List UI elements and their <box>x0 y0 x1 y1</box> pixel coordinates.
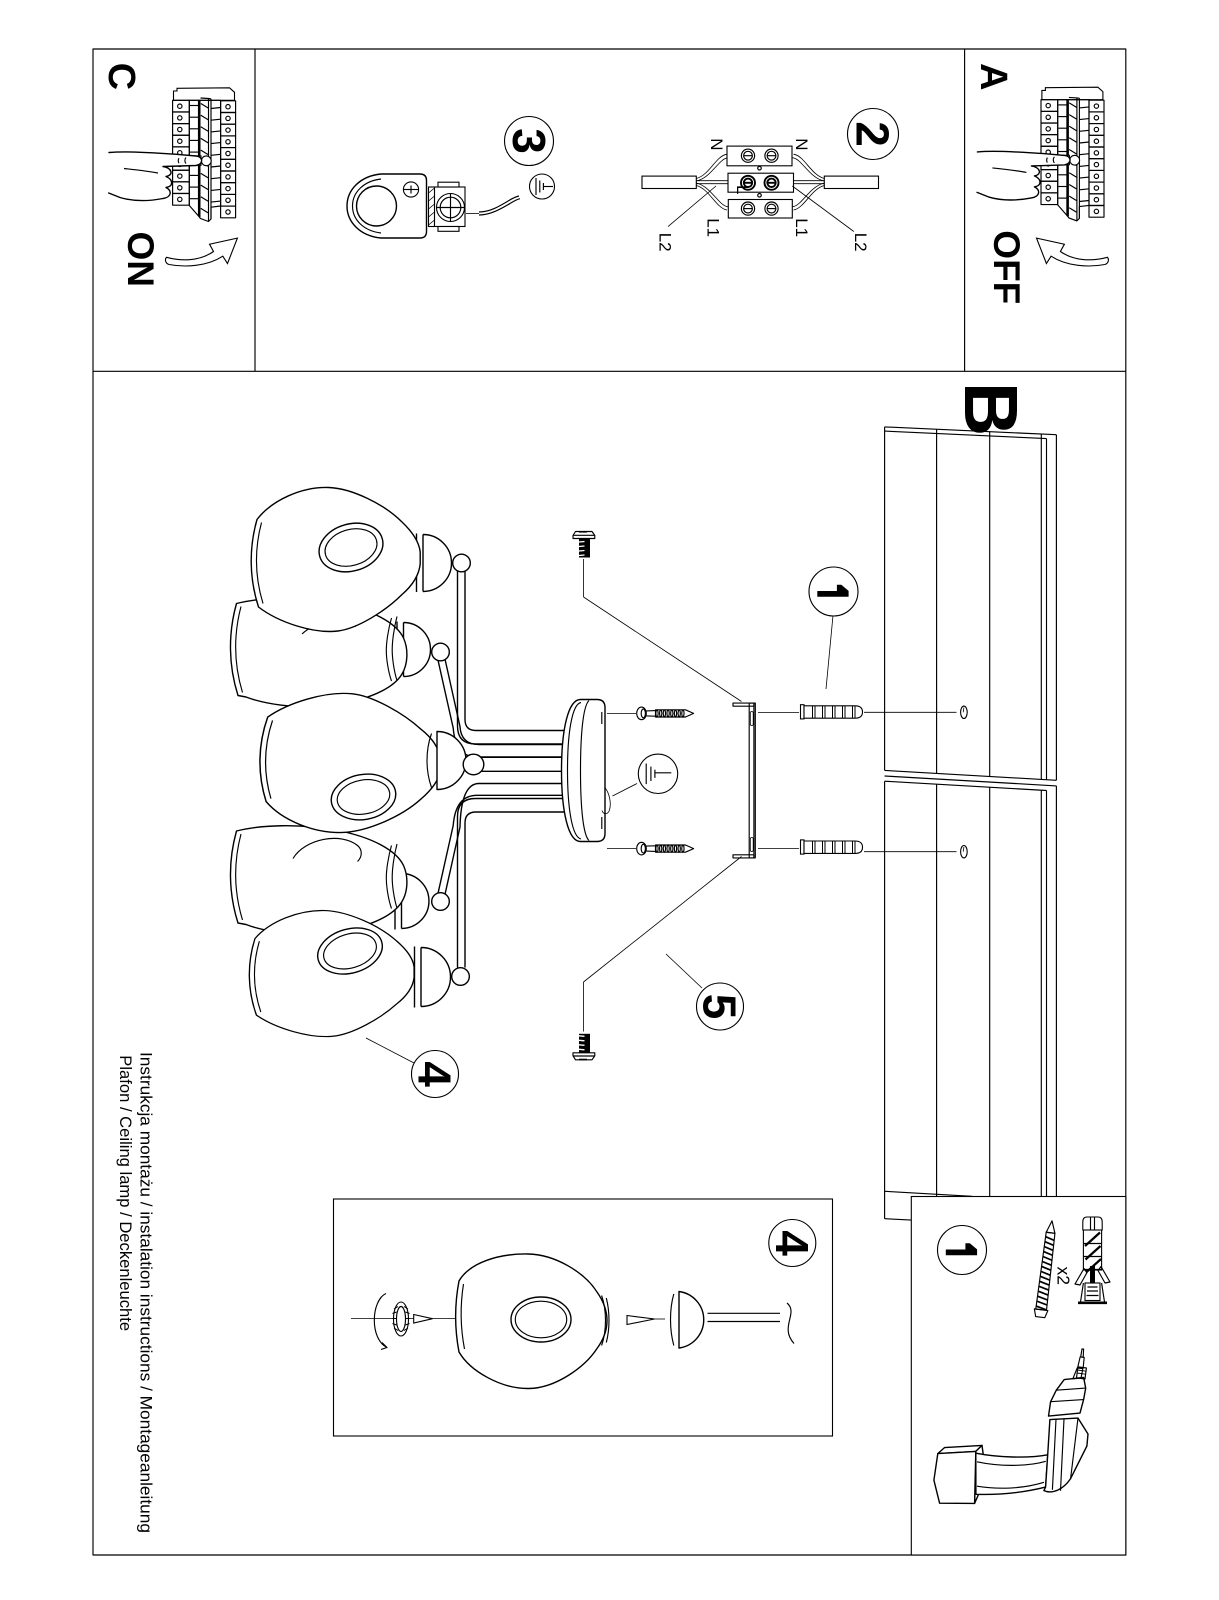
svg-text:N: N <box>792 138 811 150</box>
svg-text:A: A <box>972 63 1014 90</box>
svg-text:Plafon / Ceiling lamp / Decken: Plafon / Ceiling lamp / Deckenleuchte <box>116 1055 135 1331</box>
svg-text:ON: ON <box>120 232 161 288</box>
svg-text:5: 5 <box>694 994 746 1020</box>
svg-text:L1: L1 <box>792 218 811 237</box>
svg-text:L1: L1 <box>703 218 722 237</box>
svg-text:C: C <box>100 63 142 90</box>
svg-text:Instrukcja montażu / instalati: Instrukcja montażu / instalation instruc… <box>137 1052 156 1533</box>
svg-text:4: 4 <box>766 1230 818 1256</box>
svg-text:4: 4 <box>409 1061 461 1087</box>
svg-text:N: N <box>707 138 726 150</box>
svg-text:L2: L2 <box>851 233 870 252</box>
svg-text:x2: x2 <box>1054 1267 1074 1285</box>
svg-text:2: 2 <box>847 121 899 147</box>
svg-text:L2: L2 <box>655 233 674 252</box>
svg-text:OFF: OFF <box>986 230 1027 304</box>
svg-text:B: B <box>949 382 1033 436</box>
svg-text:L: L <box>733 185 752 194</box>
svg-text:3: 3 <box>503 128 555 154</box>
